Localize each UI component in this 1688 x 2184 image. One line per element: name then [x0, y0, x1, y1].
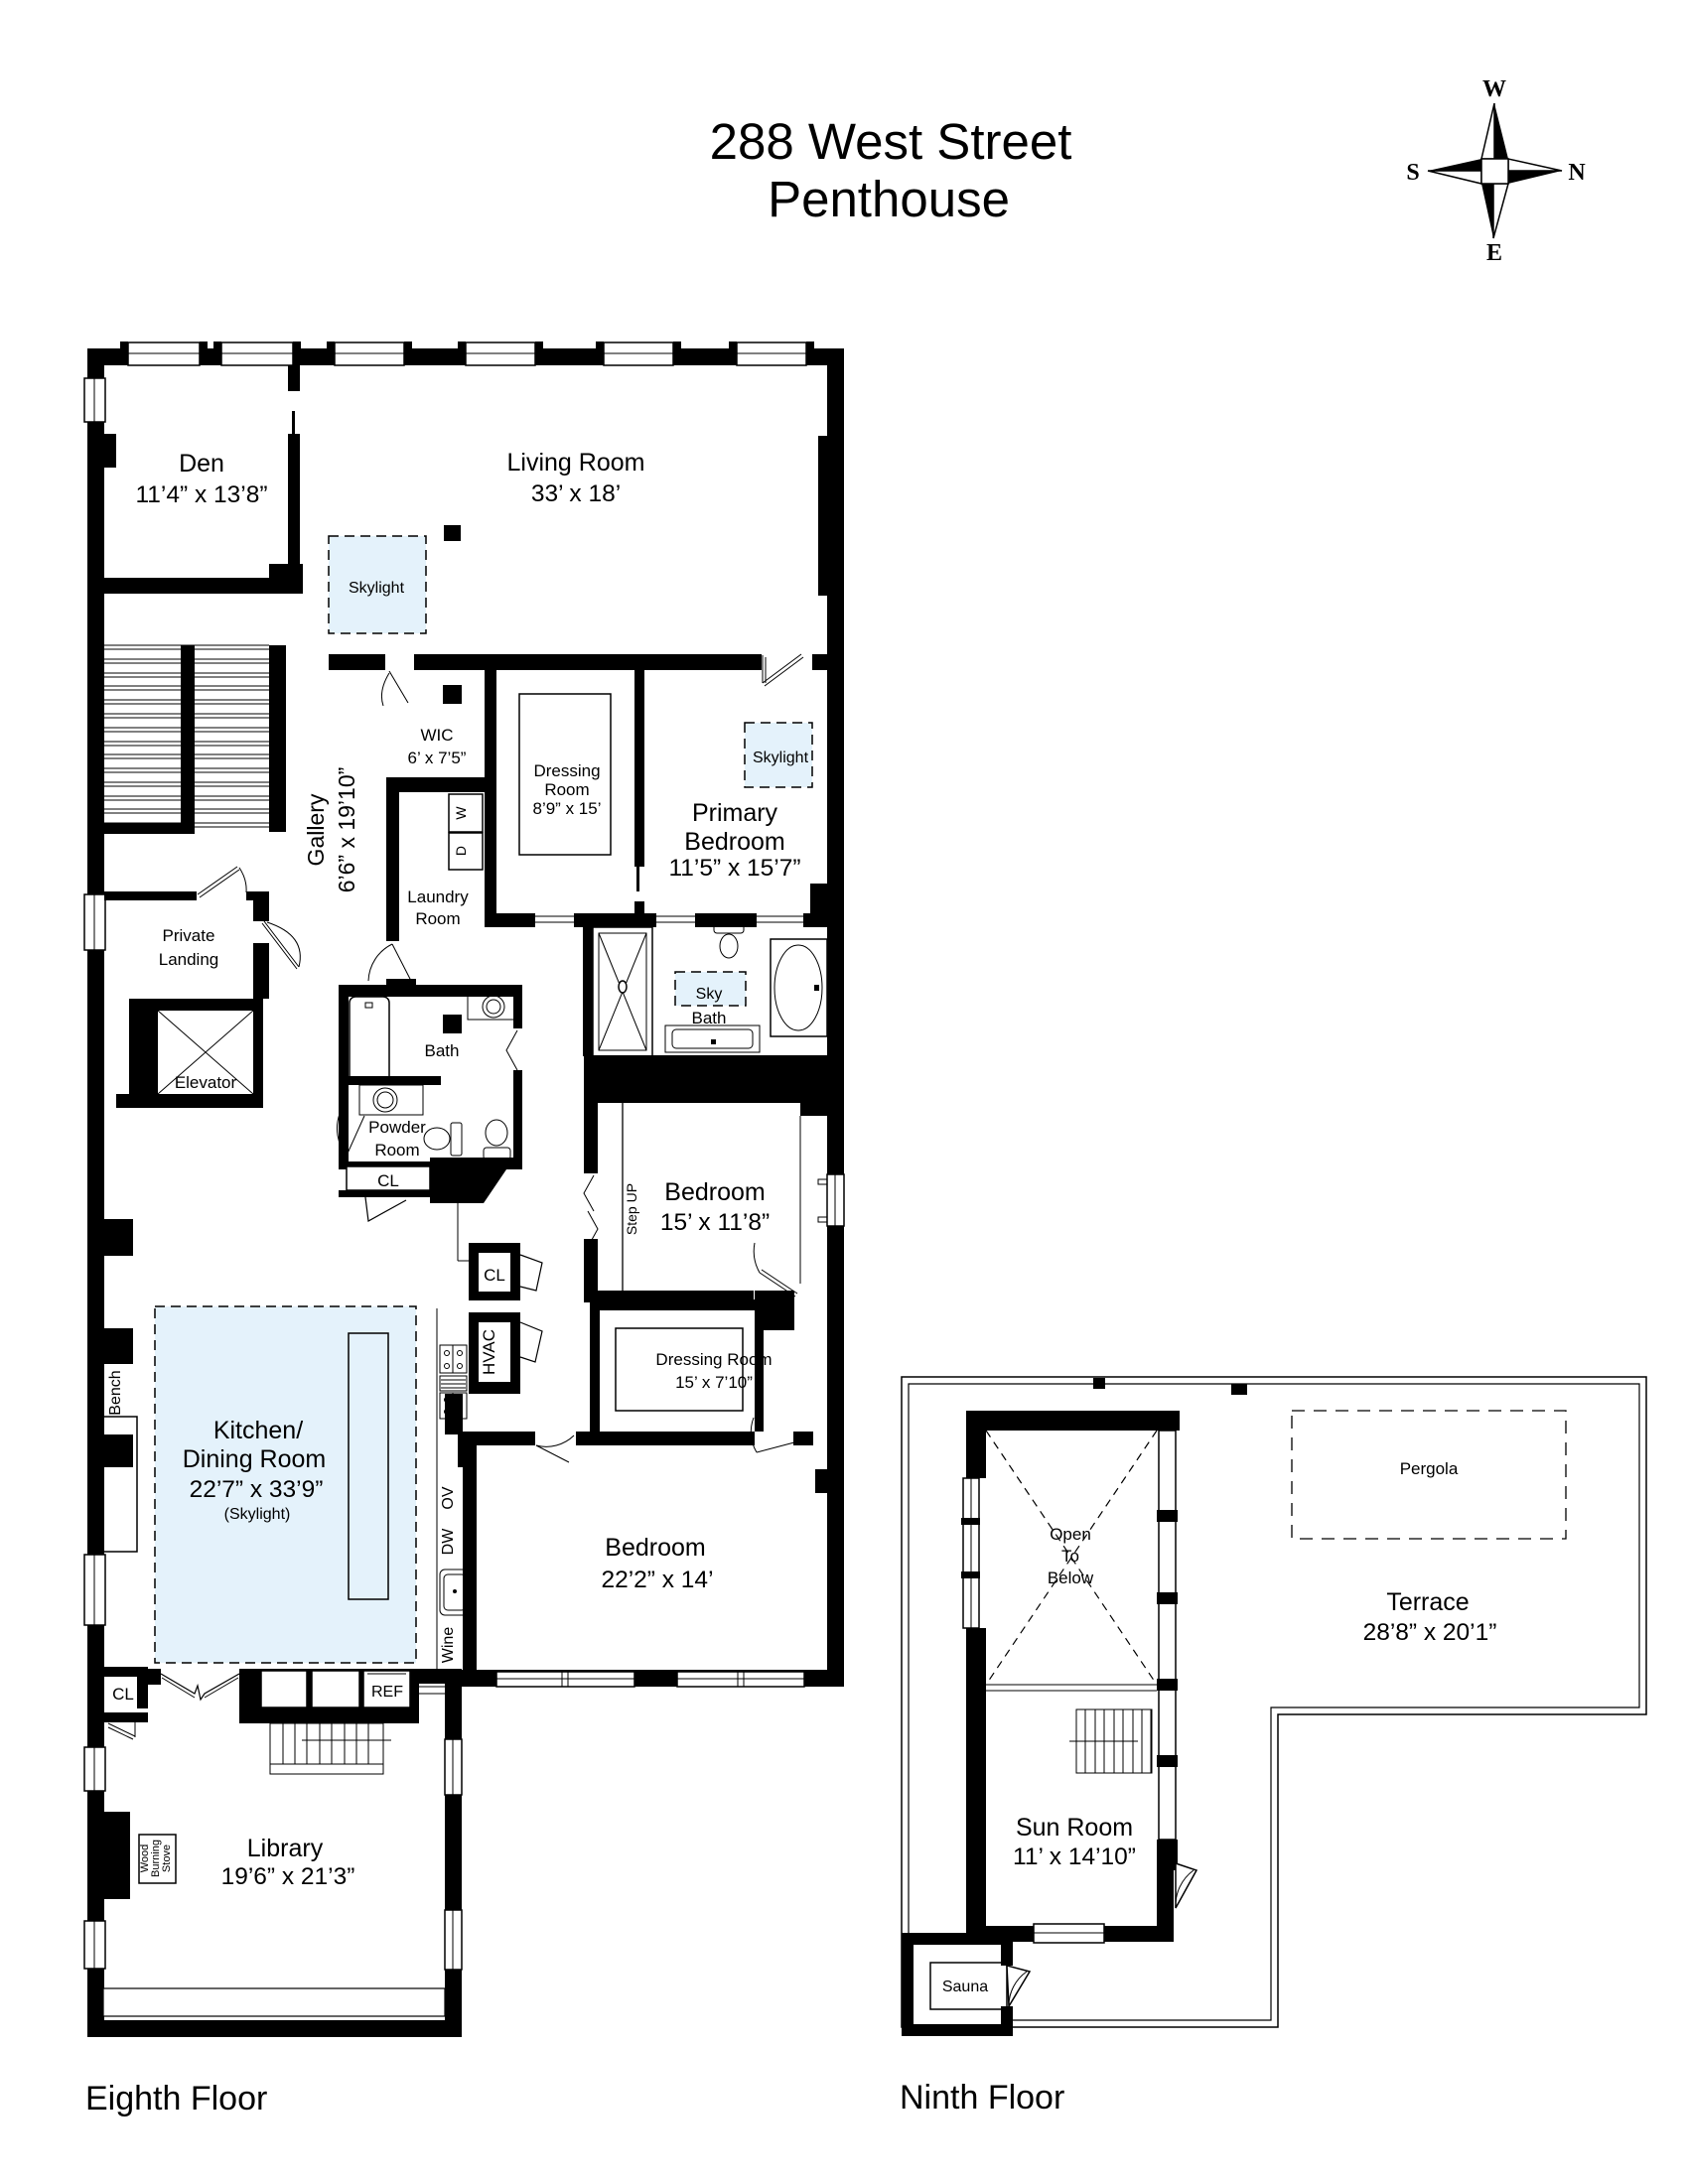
- svg-text:N: N: [1568, 160, 1586, 186]
- svg-text:Sun Room: Sun Room: [1016, 1814, 1133, 1842]
- svg-text:Open: Open: [1050, 1525, 1091, 1544]
- svg-text:E: E: [1486, 240, 1502, 266]
- svg-text:Elevator: Elevator: [175, 1073, 237, 1092]
- svg-text:CL: CL: [377, 1171, 399, 1190]
- svg-text:W: W: [453, 806, 469, 820]
- svg-text:DW: DW: [440, 1528, 457, 1556]
- svg-text:CL: CL: [484, 1266, 505, 1285]
- svg-text:Laundry: Laundry: [407, 887, 469, 906]
- svg-text:Dining Room: Dining Room: [183, 1445, 327, 1473]
- svg-text:11’5” x 15’7”: 11’5” x 15’7”: [668, 855, 800, 882]
- svg-text:22’2” x 14’: 22’2” x 14’: [601, 1567, 713, 1593]
- svg-text:Dressing: Dressing: [533, 761, 600, 780]
- svg-text:Room: Room: [415, 909, 460, 928]
- svg-text:8’9” x 15’: 8’9” x 15’: [533, 799, 602, 818]
- svg-text:Room: Room: [374, 1141, 419, 1160]
- svg-text:Den: Den: [179, 450, 224, 478]
- svg-text:Bath: Bath: [425, 1041, 460, 1060]
- svg-text:Powder: Powder: [368, 1118, 426, 1137]
- svg-text:Pergola: Pergola: [1400, 1459, 1459, 1478]
- svg-text:Bedroom: Bedroom: [605, 1534, 705, 1562]
- svg-text:Gallery: Gallery: [303, 793, 329, 866]
- svg-text:Kitchen/: Kitchen/: [213, 1417, 303, 1444]
- svg-text:15’ x 7’10”: 15’ x 7’10”: [675, 1373, 753, 1392]
- svg-text:11’4” x 13’8”: 11’4” x 13’8”: [135, 481, 267, 508]
- svg-text:6’ x 7’5”: 6’ x 7’5”: [408, 749, 467, 767]
- svg-text:Wine: Wine: [440, 1627, 457, 1664]
- svg-text:Sauna: Sauna: [942, 1979, 988, 1995]
- svg-text:S: S: [1406, 160, 1419, 186]
- svg-text:Step UP: Step UP: [624, 1183, 639, 1235]
- svg-text:Ninth Floor: Ninth Floor: [900, 2079, 1064, 2116]
- svg-text:Bedroom: Bedroom: [664, 1178, 765, 1206]
- svg-text:Library: Library: [247, 1835, 324, 1862]
- svg-text:22’7” x 33’9”: 22’7” x 33’9”: [190, 1476, 324, 1503]
- svg-text:19’6” x 21’3”: 19’6” x 21’3”: [221, 1863, 355, 1890]
- svg-text:Terrace: Terrace: [1386, 1588, 1469, 1616]
- svg-text:33’ x 18’: 33’ x 18’: [531, 480, 621, 507]
- svg-text:CL: CL: [112, 1685, 134, 1704]
- svg-text:Bedroom: Bedroom: [684, 828, 784, 856]
- svg-text:Primary: Primary: [692, 799, 778, 827]
- svg-text:Skylight: Skylight: [753, 750, 809, 766]
- svg-text:OV: OV: [440, 1486, 457, 1509]
- svg-text:Private: Private: [163, 926, 215, 945]
- svg-text:Landing: Landing: [159, 950, 219, 969]
- svg-text:(Skylight): (Skylight): [224, 1506, 291, 1523]
- svg-text:D: D: [453, 846, 469, 856]
- svg-text:Living Room: Living Room: [507, 449, 645, 477]
- svg-text:Eighth Floor: Eighth Floor: [85, 2080, 267, 2117]
- svg-text:6’6” x 19’10”: 6’6” x 19’10”: [334, 767, 359, 893]
- svg-text:Stove: Stove: [161, 1844, 173, 1872]
- svg-text:WIC: WIC: [420, 726, 453, 745]
- svg-text:Room: Room: [544, 780, 589, 799]
- svg-text:REF: REF: [371, 1684, 403, 1701]
- svg-text:28’8” x 20’1”: 28’8” x 20’1”: [1363, 1619, 1497, 1646]
- svg-text:To: To: [1061, 1547, 1079, 1566]
- svg-text:Bath: Bath: [692, 1009, 727, 1027]
- svg-text:Skylight: Skylight: [349, 580, 405, 597]
- svg-text:15’ x 11’8”: 15’ x 11’8”: [660, 1209, 770, 1236]
- svg-text:W: W: [1482, 76, 1506, 102]
- svg-text:Below: Below: [1048, 1569, 1094, 1587]
- svg-text:Bench: Bench: [107, 1370, 124, 1415]
- svg-text:11’ x 14’10”: 11’ x 14’10”: [1013, 1843, 1136, 1870]
- svg-text:Sky: Sky: [696, 986, 723, 1003]
- svg-text:HVAC: HVAC: [480, 1329, 498, 1375]
- svg-text:288 West Street: 288 West Street: [710, 113, 1072, 170]
- svg-text:Penthouse: Penthouse: [768, 171, 1010, 227]
